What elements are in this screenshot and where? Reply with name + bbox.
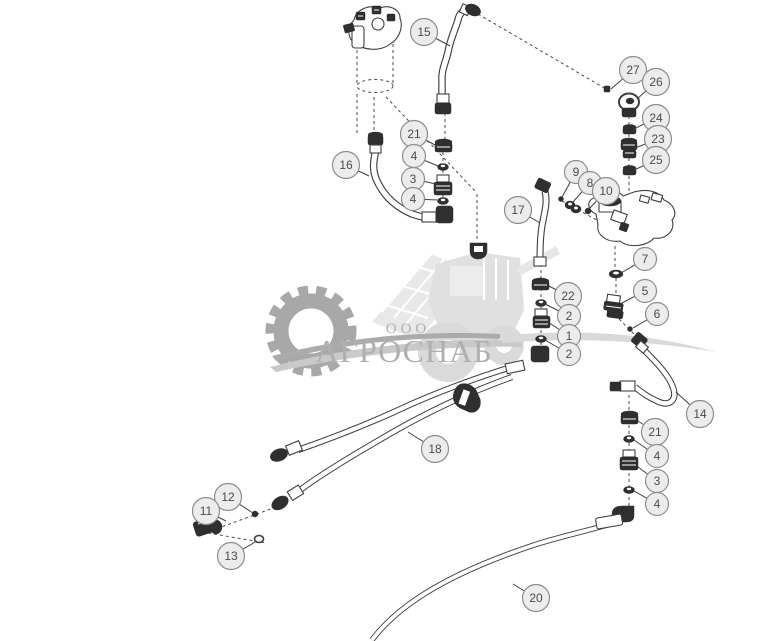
callout-3-9[interactable]: 3 xyxy=(402,168,437,191)
callout-4-10[interactable]: 4 xyxy=(402,188,439,211)
callout-number: 12 xyxy=(221,490,235,504)
fitting-26-elbow xyxy=(619,94,639,118)
callout-number: 3 xyxy=(654,474,661,488)
callout-6-21[interactable]: 6 xyxy=(633,303,669,329)
part-5-fitting xyxy=(603,294,623,319)
part-12-connector xyxy=(252,511,258,517)
callout-4-8[interactable]: 4 xyxy=(403,145,439,168)
callout-5-20[interactable]: 5 xyxy=(622,280,657,304)
fitting-hose18-upper-end xyxy=(268,441,302,464)
part-4-right-washer-a xyxy=(624,436,635,443)
watermark-name: АГРОСНАБ xyxy=(315,333,492,369)
callout-number: 27 xyxy=(626,63,640,77)
callout-number: 13 xyxy=(224,549,238,563)
part-4-left-washer-b xyxy=(438,198,449,205)
part-25-nut xyxy=(623,166,636,176)
callout-number: 6 xyxy=(654,307,661,321)
callout-number: 18 xyxy=(428,442,442,456)
callout-number: 21 xyxy=(648,425,662,439)
hose-18-lower xyxy=(299,377,512,491)
callout-16-6[interactable]: 16 xyxy=(333,152,370,179)
part-22-nut xyxy=(532,278,549,290)
part-27-connector xyxy=(604,86,610,92)
callout-12-28[interactable]: 12 xyxy=(215,484,254,514)
callout-15-0[interactable]: 15 xyxy=(411,19,451,47)
part-10-screw xyxy=(585,208,591,214)
callout-number: 17 xyxy=(511,203,525,217)
fitting-hose16-top xyxy=(368,132,383,153)
part-8-rings xyxy=(565,201,581,213)
part-4-right-washer-b xyxy=(624,487,635,494)
callout-number: 4 xyxy=(654,497,661,511)
callout-25-5[interactable]: 25 xyxy=(634,147,670,174)
callout-13-30[interactable]: 13 xyxy=(218,541,258,570)
callout-number: 2 xyxy=(566,347,573,361)
callout-number: 2 xyxy=(566,309,573,323)
fitting-hose16-elbow xyxy=(422,206,453,223)
hose-15 xyxy=(442,9,472,99)
fitting-hose14-top xyxy=(631,332,649,354)
callout-number: 9 xyxy=(573,165,580,179)
callout-4-26[interactable]: 4 xyxy=(634,491,669,516)
fitting-hose20-elbow xyxy=(595,506,634,529)
callout-7-15[interactable]: 7 xyxy=(621,248,657,274)
callout-21-7[interactable]: 21 xyxy=(401,121,438,148)
callout-17-14[interactable]: 17 xyxy=(505,197,541,224)
part-4-left-washer-a xyxy=(438,164,449,171)
fitting-hose18-lower-end xyxy=(269,485,303,513)
callout-number: 22 xyxy=(561,289,575,303)
hose-20 xyxy=(372,521,620,640)
callout-number: 1 xyxy=(566,329,573,343)
hose-14 xyxy=(635,350,674,403)
part-1-fitting xyxy=(533,309,550,328)
callout-27-1[interactable]: 27 xyxy=(611,57,647,90)
callout-number: 26 xyxy=(649,75,663,89)
callout-number: 24 xyxy=(649,111,663,125)
fitting-hose15-end xyxy=(435,94,451,114)
callout-number: 4 xyxy=(654,449,661,463)
hose-17 xyxy=(540,191,546,258)
callout-18-27[interactable]: 18 xyxy=(408,432,449,463)
part-2-washer-b xyxy=(536,336,547,343)
callout-number: 3 xyxy=(410,172,417,186)
callout-number: 16 xyxy=(339,158,353,172)
callout-number: 23 xyxy=(651,132,665,146)
callout-number: 4 xyxy=(411,149,418,163)
callout-number: 4 xyxy=(410,192,417,206)
part-3-right-fitting xyxy=(620,450,638,470)
callout-number: 11 xyxy=(200,504,213,518)
parts-diagram-page: ООО АГРОСНАБ xyxy=(0,0,781,641)
fitting-hose17-top xyxy=(534,178,551,194)
callout-number: 15 xyxy=(417,25,431,39)
part-24-nut xyxy=(623,125,636,135)
part-21-left-nut xyxy=(435,139,452,152)
callout-20-31[interactable]: 20 xyxy=(513,584,550,612)
callout-14-22[interactable]: 14 xyxy=(676,392,714,428)
parts-diagram-svg: ООО АГРОСНАБ xyxy=(0,0,781,641)
part-cap-fitting xyxy=(470,243,487,259)
callout-number: 25 xyxy=(649,153,663,167)
callout-number: 10 xyxy=(599,184,613,198)
part-21-right-nut xyxy=(621,411,638,424)
fitting-hose14-end xyxy=(610,381,635,391)
part-3-left-fitting xyxy=(434,175,452,195)
part-7-washer xyxy=(609,270,623,278)
part-6-connector xyxy=(628,327,633,332)
callout-number: 7 xyxy=(642,252,649,266)
pump-assembly xyxy=(343,6,401,49)
callout-number: 20 xyxy=(529,591,543,605)
callout-number: 5 xyxy=(642,284,649,298)
callout-3-25[interactable]: 3 xyxy=(638,467,669,493)
part-9-screw xyxy=(559,197,564,202)
fitting-hose17-end xyxy=(534,257,546,266)
part-2-washer-a xyxy=(536,300,547,307)
part-23-fitting xyxy=(621,138,637,158)
callout-2-19[interactable]: 2 xyxy=(545,340,581,366)
callout-number: 21 xyxy=(407,127,421,141)
callout-21-23[interactable]: 21 xyxy=(638,419,669,446)
callout-number: 14 xyxy=(693,407,707,421)
